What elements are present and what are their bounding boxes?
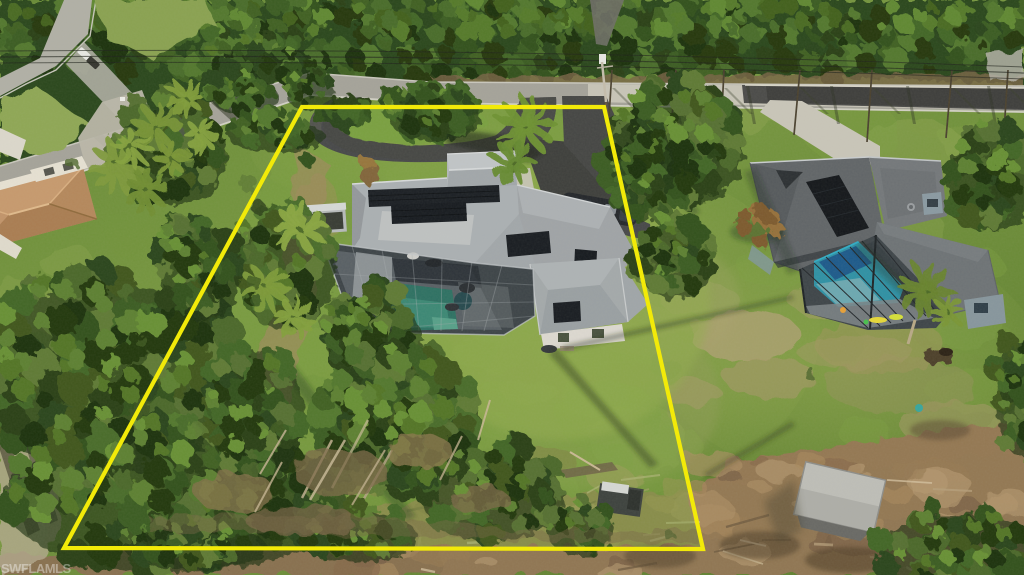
svg-text:SWFLAMLS: SWFLAMLS (1, 561, 71, 575)
